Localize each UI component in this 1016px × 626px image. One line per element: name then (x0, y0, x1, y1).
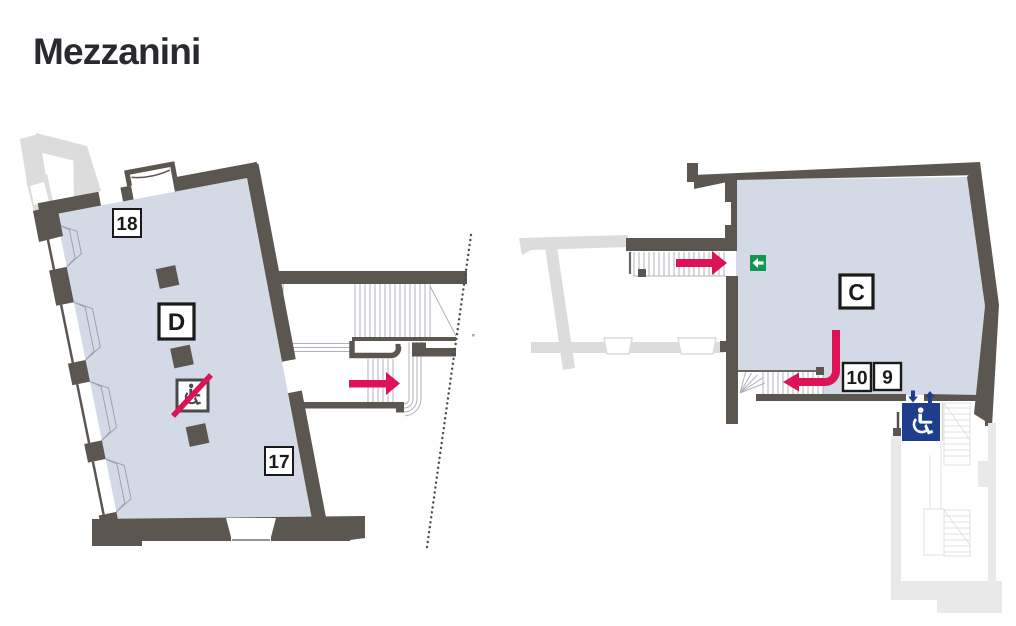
svg-text:10: 10 (846, 368, 867, 389)
svg-text:9: 9 (882, 367, 893, 388)
svg-text:Mezzanini: Mezzanini (33, 31, 201, 72)
svg-text:C: C (848, 279, 865, 305)
svg-text:17: 17 (268, 452, 289, 473)
svg-text:D: D (168, 309, 185, 336)
svg-text:18: 18 (116, 214, 137, 235)
